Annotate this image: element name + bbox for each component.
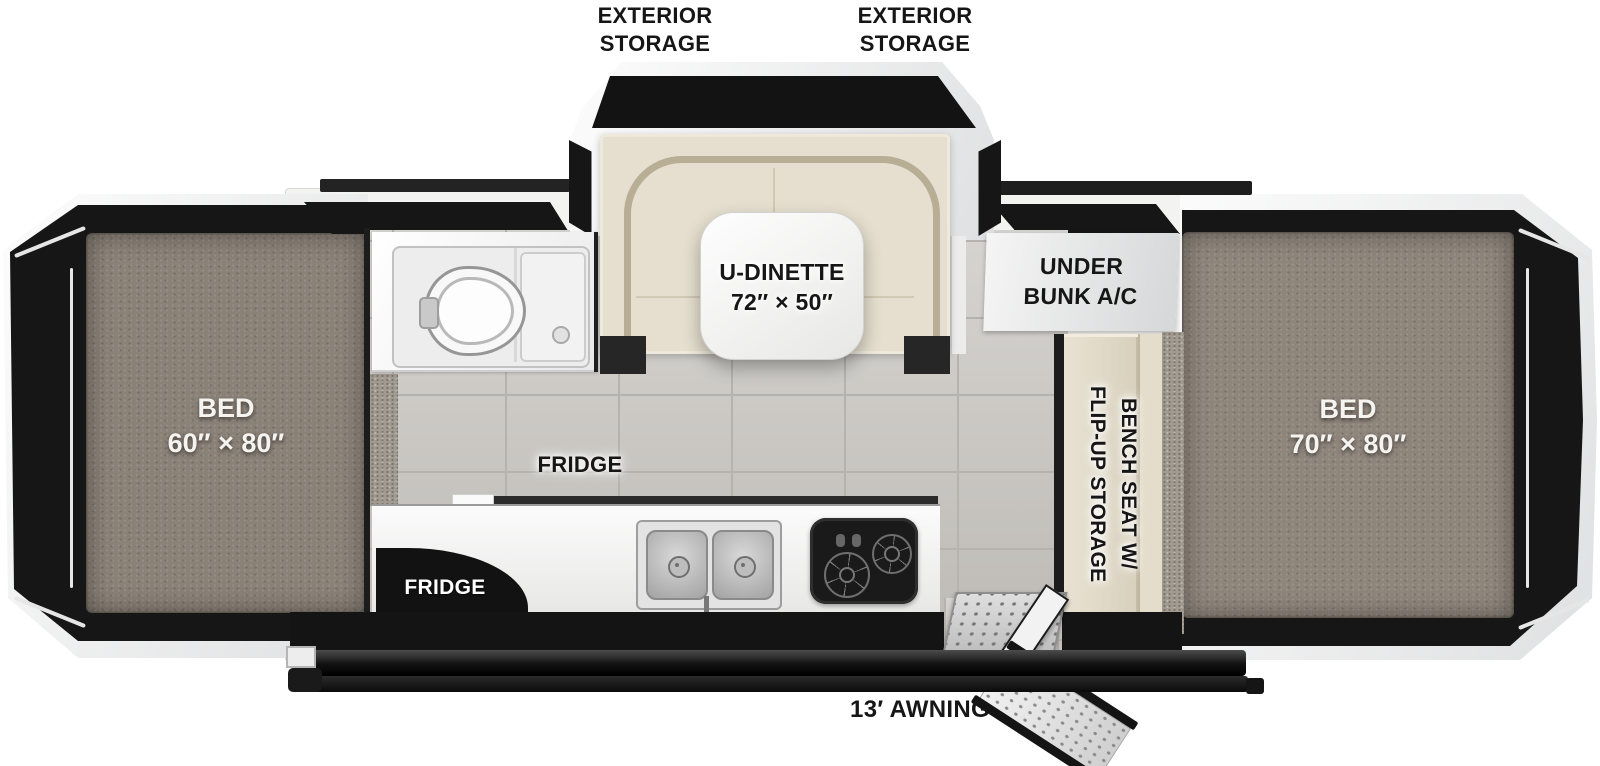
left-wall-carpet [370,374,398,506]
right-wall-carpet [1162,332,1184,634]
dinette-base-cabinet-left [600,336,646,374]
roof-rail-right [990,181,1252,195]
awning-endcap-left [288,668,322,692]
under-bunk-ac-label: UNDER BUNK A/C [994,251,1168,311]
dinette-side-window-right [974,140,1004,236]
sink-bowl-left [646,530,708,600]
right-bed-name: BED [1182,392,1514,427]
under-bunk-ac-box: UNDER BUNK A/C [983,233,1178,331]
awning-roll-bar [298,650,1246,676]
bench-seat-line1: BENCH SEAT W/ [1113,344,1144,624]
under-bunk-ac-line1: UNDER [995,251,1168,281]
dinette-base-cabinet-right [904,336,950,374]
right-bed-seam-front [1526,268,1529,588]
dinette-wall-right [950,236,966,354]
dinette-table: U-DINETTE 72″ × 50″ [700,212,864,360]
stove-burner-large [824,552,870,598]
sink-icon [636,520,782,610]
stove-icon [810,518,918,604]
right-bed-mattress: BED 70″ × 80″ [1182,232,1514,618]
awning-bracket-left [286,646,316,668]
camper-floorplan: EXTERIOR STORAGE EXTERIOR STORAGE BED 60… [0,0,1600,766]
stove-burner-small [872,534,912,574]
under-bunk-ac-line2: BUNK A/C [994,281,1167,311]
left-bed-name: BED [86,391,366,426]
stove-knob-2 [852,534,861,547]
bottom-sidewall-right [1062,612,1182,654]
toilet-lid [436,277,514,345]
fridge-door-label: FRIDGE [384,576,506,600]
stove-knob-1 [836,534,845,547]
bench-seat-label: BENCH SEAT W/ FLIP-UP STORAGE [1058,344,1153,624]
awning-roll-bar-lower [312,676,1248,692]
dinette-front-window [592,70,978,130]
dinette-label: U-DINETTE 72″ × 50″ [701,257,863,317]
left-bed-mattress: BED 60″ × 80″ [86,233,366,613]
bench-seat-line2: FLIP-UP STORAGE [1082,344,1113,624]
toilet-hinge [419,297,439,329]
fridge-floor-label: FRIDGE [520,452,640,478]
awning-label: 13′ AWNING [830,696,1010,724]
sink-drain-left [668,556,690,578]
dinette-name: U-DINETTE [701,257,863,287]
exterior-storage-label-left: EXTERIOR STORAGE [565,2,745,58]
sink-bowl-right [712,530,774,600]
left-bed-size: 60″ × 80″ [86,426,366,461]
shower-drain-icon [552,326,570,344]
bottom-sidewall-left [290,612,944,654]
sink-drain-right [734,556,756,578]
right-bed-size: 70″ × 80″ [1182,427,1514,462]
roof-rail-left [320,179,570,192]
dinette-size: 72″ × 50″ [701,287,863,317]
awning-endcap-right [1246,678,1264,694]
left-bed-seam-front [70,268,73,588]
right-bed-label: BED 70″ × 80″ [1182,392,1514,462]
left-bed-label: BED 60″ × 80″ [86,391,366,461]
shower-pan-right [520,252,586,362]
exterior-storage-label-right: EXTERIOR STORAGE [825,2,1005,58]
